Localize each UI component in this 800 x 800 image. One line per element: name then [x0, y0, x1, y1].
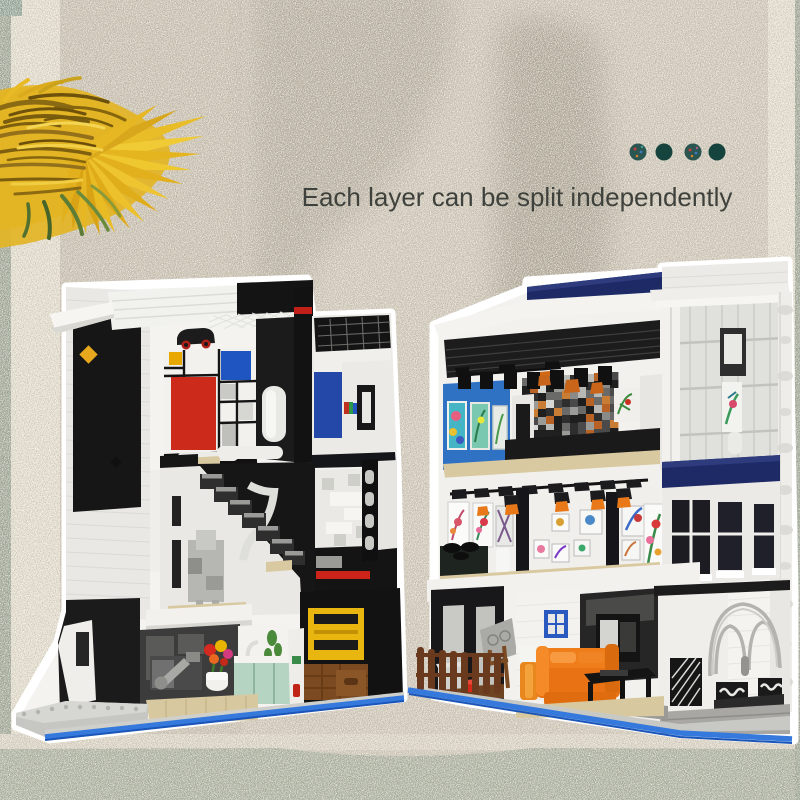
svg-text:Each layer can be split indepe: Each layer can be split independently	[302, 182, 733, 212]
